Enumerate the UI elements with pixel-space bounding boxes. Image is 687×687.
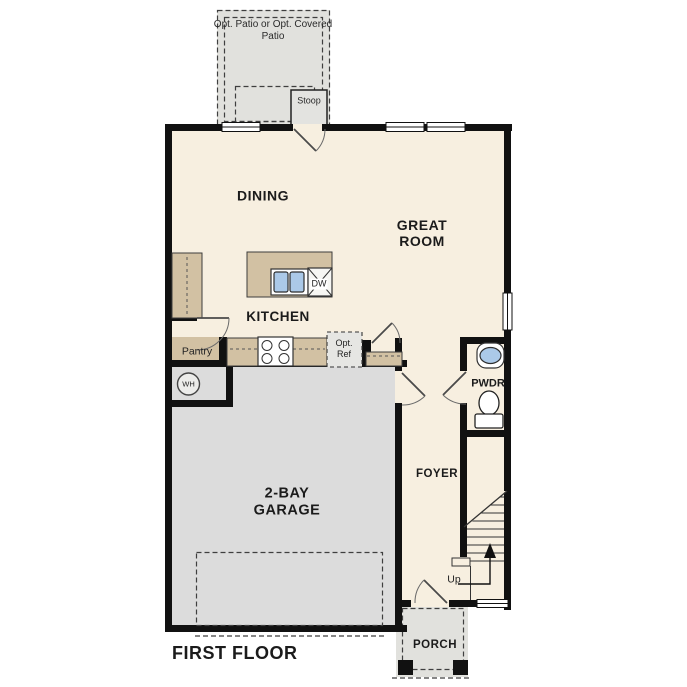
- optional-refrigerator-outline: [327, 332, 362, 367]
- pantry-shelving: [172, 337, 219, 360]
- great-room-window-right: [427, 123, 465, 132]
- first-floor-plan: Opt. Patio or Opt. Covered Patio Stoop D…: [0, 0, 687, 687]
- porch-post: [453, 660, 468, 675]
- dining-window: [222, 123, 260, 132]
- great-room-window-left: [386, 123, 424, 132]
- hall-counter: [366, 352, 402, 366]
- stoop-pad: [291, 90, 327, 128]
- bathroom-sink-icon: [477, 343, 504, 368]
- kitchen-sink-icon: [271, 269, 308, 295]
- stair-window: [477, 600, 508, 608]
- porch-post: [398, 660, 413, 675]
- side-window: [503, 293, 512, 330]
- porch-area: [392, 607, 470, 678]
- floor-plan-drawing: [0, 0, 687, 687]
- dishwasher-icon: [308, 268, 332, 296]
- water-heater-icon: [178, 373, 200, 395]
- wall-counter: [172, 253, 202, 318]
- stove-icon: [258, 337, 293, 366]
